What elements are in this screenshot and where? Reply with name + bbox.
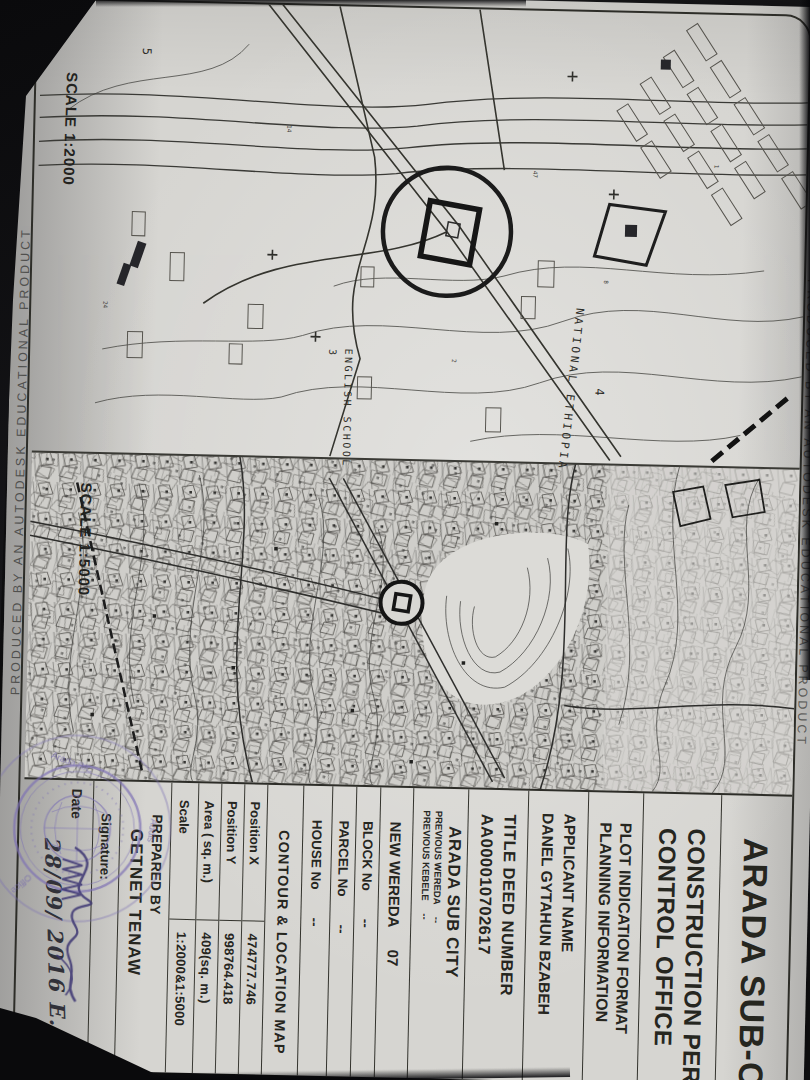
map-label-number-5: 5 <box>140 48 154 56</box>
house-value: -- <box>308 918 323 927</box>
previous-wereda-value: -- <box>431 917 442 924</box>
scale-label-5000: SCALE 1:5000 <box>76 482 96 596</box>
area-label: Area ( sq. m.) <box>196 783 221 920</box>
parcel-label: PARCEL No <box>335 820 352 896</box>
map-label-number-3: 3 <box>327 349 338 355</box>
svg-text:14: 14 <box>286 125 293 133</box>
position-x-label: Position X <box>242 784 267 921</box>
block-label: BLOCK No <box>359 821 376 891</box>
page-title: ARADA SUB-CITY <box>714 795 792 1080</box>
block-value: -- <box>358 919 373 928</box>
position-y-value: 998764.418 <box>217 921 241 1005</box>
format-title: PLOT INDICATION FORMAT PLANNING INFORMAT… <box>581 792 643 1080</box>
office-line2: CONTROL OFFICE <box>647 828 682 1080</box>
svg-text:1: 1 <box>713 165 720 169</box>
house-label: HOUSE No <box>308 820 325 890</box>
new-wereda-label: NEW WEREDA <box>386 822 405 928</box>
svg-text:8: 8 <box>603 280 610 284</box>
subcity-row: ARADA SUB CITY PREVIOUS WEREDA -- PREVIO… <box>407 788 469 1080</box>
scale-value: 1:2000&1:5000 <box>167 920 195 1027</box>
handwritten-signature <box>35 835 119 1017</box>
office-line1: CONSTRUCTION PERMIT <box>676 828 711 1080</box>
stamp-text-addis: Addis <box>145 818 160 844</box>
position-x-value: 474777.746 <box>240 921 264 1005</box>
office-name: CONSTRUCTION PERMIT CONTROL OFFICE <box>636 793 721 1080</box>
new-wereda-value: 07 <box>385 949 402 966</box>
stamp-text-office: Office <box>9 872 35 896</box>
map-label-number-4: 4 <box>592 388 606 396</box>
location-map-1-2000: 1847 21424 <box>32 0 810 469</box>
position-y-label: Position Y <box>219 784 244 921</box>
deed-row: TITLE DEED NUMBER AA000010702617 <box>462 789 529 1080</box>
previous-wereda-label: PREVIOUS WEREDA <box>432 811 445 905</box>
previous-kebele-label: PREVIOUS KEBELE <box>420 810 433 901</box>
area-value: 409(sq. m.) <box>194 920 218 1004</box>
applicant-row: APPLICANT NAME DANEL GYTAHUN BZABEH <box>521 791 588 1080</box>
svg-text:47: 47 <box>532 171 539 179</box>
new-wereda-row: NEW WEREDA 07 <box>374 787 414 1080</box>
photo-of-permit-document: PRODUCED BY AN AUTODESK EDUCATIONAL PROD… <box>0 0 810 1080</box>
contour-map-title: CONTOUR & LOCATION MAP <box>261 785 304 1080</box>
svg-text:24: 24 <box>102 301 109 309</box>
previous-kebele-value: -- <box>420 913 431 920</box>
svg-text:2: 2 <box>451 359 458 363</box>
parcel-value: -- <box>334 924 349 933</box>
paper-sheet: PRODUCED BY AN AUTODESK EDUCATIONAL PROD… <box>0 0 810 1080</box>
